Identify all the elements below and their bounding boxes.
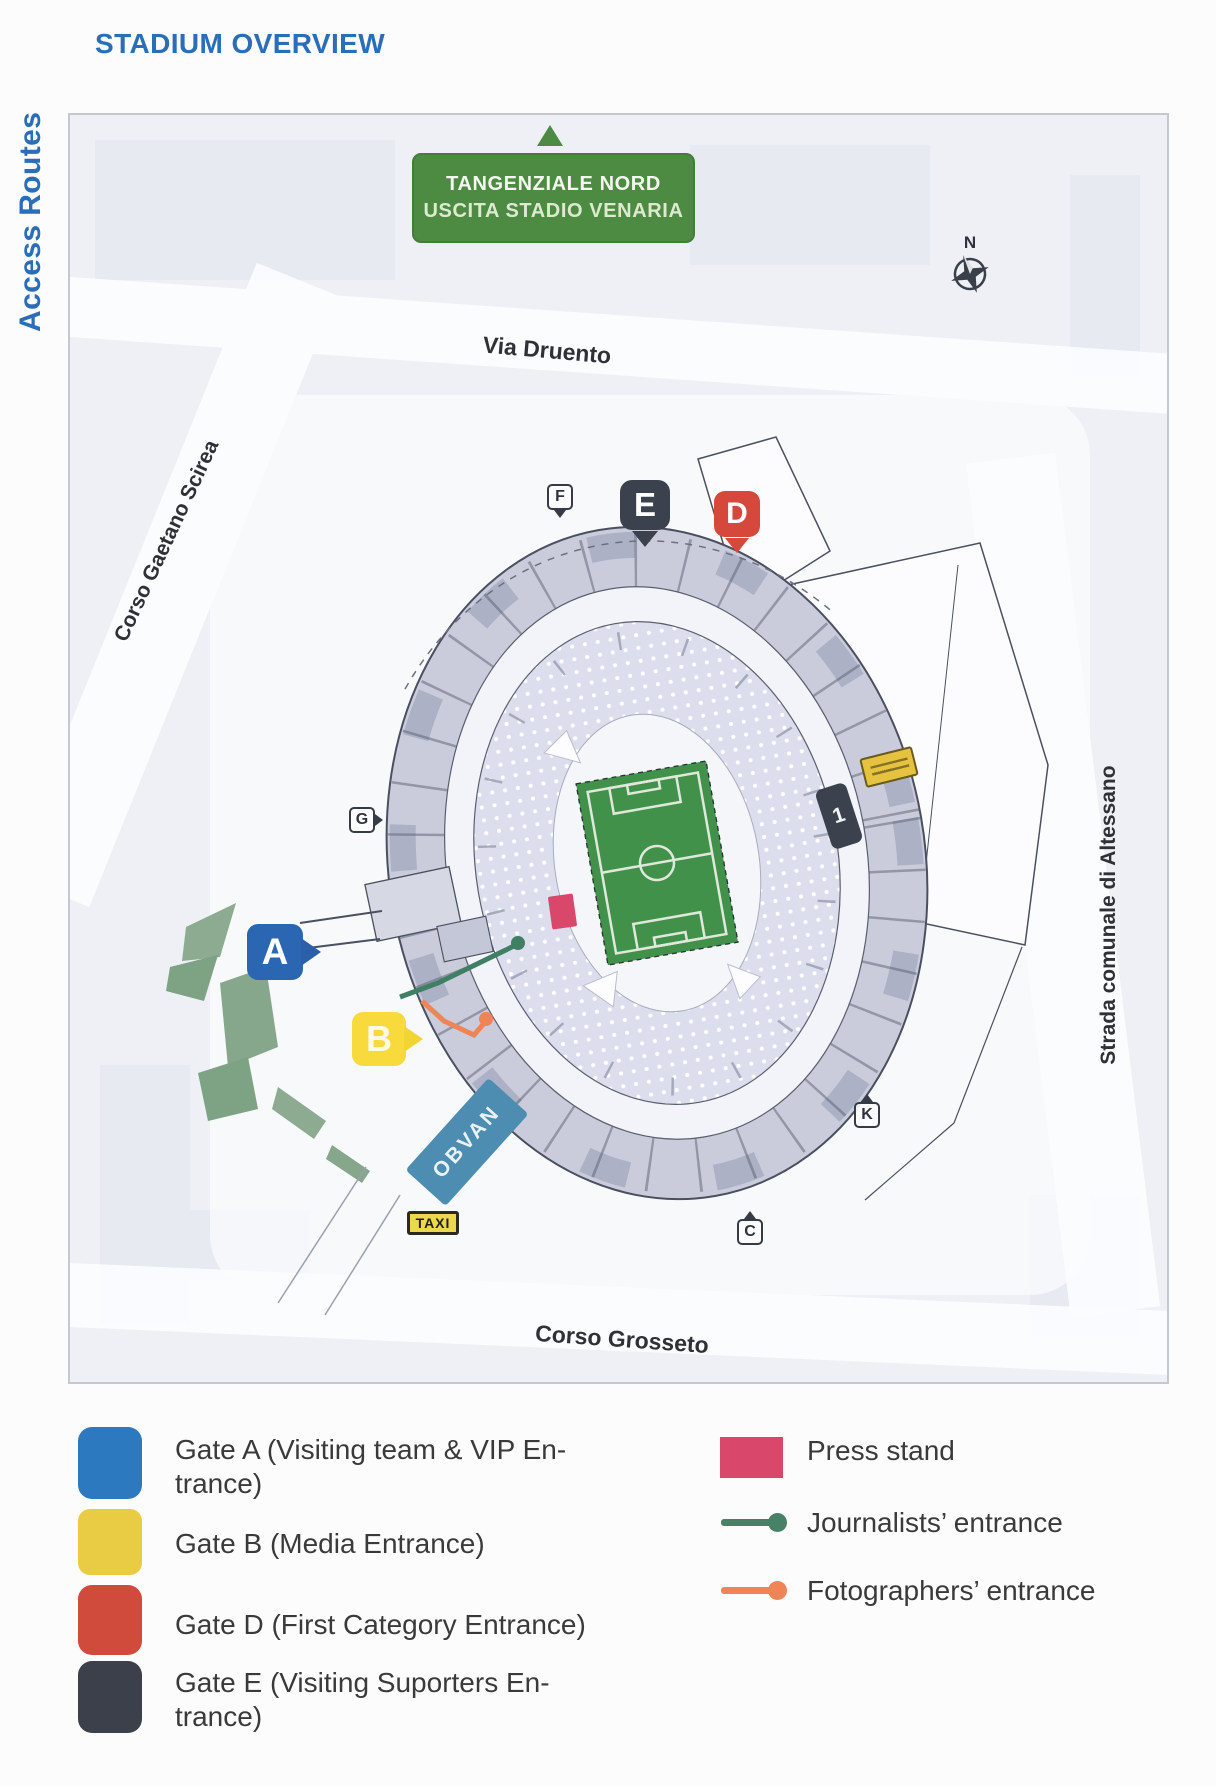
marker-c: C xyxy=(737,1219,763,1245)
marker-k-pointer-icon xyxy=(861,1094,873,1102)
highway-sign-line2: USCITA STADIO VENARIA xyxy=(423,198,683,225)
legend-journalists-label: Journalists’ entrance xyxy=(807,1506,1063,1540)
gate-a-pointer-icon xyxy=(301,938,321,966)
taxi-sign: TAXI xyxy=(407,1211,459,1235)
fotographers-dot-icon xyxy=(768,1581,787,1600)
highway-arrow-icon xyxy=(537,125,563,146)
marker-c-pointer-icon xyxy=(744,1211,756,1219)
gate-d-letter: D xyxy=(726,497,748,531)
compass-north-label: N xyxy=(938,235,1002,251)
marker-g-pointer-icon xyxy=(375,814,383,826)
gate-e-pin: E xyxy=(620,480,670,530)
legend-gate-e-label: Gate E (Visiting Suporters En- trance) xyxy=(175,1666,550,1734)
page-title: STADIUM OVERVIEW xyxy=(95,28,385,60)
street-label-strada-comunale: Strada comunale di Altessano xyxy=(1097,730,1121,1100)
legend-fotographers-label: Fotographers’ entrance xyxy=(807,1574,1095,1608)
legend-journalists-swatch xyxy=(721,1519,773,1526)
highway-sign-line1: TANGENZIALE NORD xyxy=(446,171,661,198)
press-stand-marker xyxy=(548,893,577,929)
legend-press-stand-swatch xyxy=(720,1437,783,1478)
gate-e-pointer-icon xyxy=(632,531,658,547)
gate-b-letter: B xyxy=(366,1018,392,1060)
compass-rose: N xyxy=(938,235,1002,302)
gate-b-pointer-icon xyxy=(404,1026,423,1052)
journalists-dot-icon xyxy=(768,1513,787,1532)
gate-d-pointer-icon xyxy=(725,538,749,553)
gate-e-letter: E xyxy=(634,486,656,524)
gate-d-pin: D xyxy=(714,491,760,537)
marker-f: F xyxy=(547,484,573,510)
legend-gate-a-label: Gate A (Visiting team & VIP En- trance) xyxy=(175,1433,566,1501)
taxi-label: TAXI xyxy=(416,1215,451,1231)
compass-rose-icon xyxy=(947,251,993,297)
legend-gate-d-label: Gate D (First Category Entrance) xyxy=(175,1608,586,1642)
gate-a-letter: A xyxy=(262,931,289,973)
marker-g: G xyxy=(349,807,375,833)
marker-k-letter: K xyxy=(861,1106,873,1124)
stadium-map: TANGENZIALE NORD USCITA STADIO VENARIA N… xyxy=(68,113,1169,1384)
legend-gate-e-swatch xyxy=(78,1661,142,1733)
legend-press-stand-label: Press stand xyxy=(807,1434,955,1468)
legend-gate-a-swatch xyxy=(78,1427,142,1499)
marker-k: K xyxy=(854,1102,880,1128)
legend-gate-b-swatch xyxy=(78,1509,142,1575)
marker-c-letter: C xyxy=(744,1223,756,1241)
marker-f-letter: F xyxy=(555,488,565,506)
access-routes-label: Access Routes xyxy=(14,112,48,332)
legend-gate-d-swatch xyxy=(78,1585,142,1655)
tower-label: 1 xyxy=(830,803,849,829)
legend-fotographers-swatch xyxy=(721,1587,773,1594)
gate-b-pin: B xyxy=(352,1012,406,1066)
legend-gate-b-label: Gate B (Media Entrance) xyxy=(175,1527,485,1561)
marker-g-letter: G xyxy=(356,811,368,829)
highway-sign: TANGENZIALE NORD USCITA STADIO VENARIA xyxy=(412,153,695,243)
marker-f-pointer-icon xyxy=(554,510,566,518)
map-graphics xyxy=(70,115,1167,1382)
gate-a-pin: A xyxy=(247,924,303,980)
